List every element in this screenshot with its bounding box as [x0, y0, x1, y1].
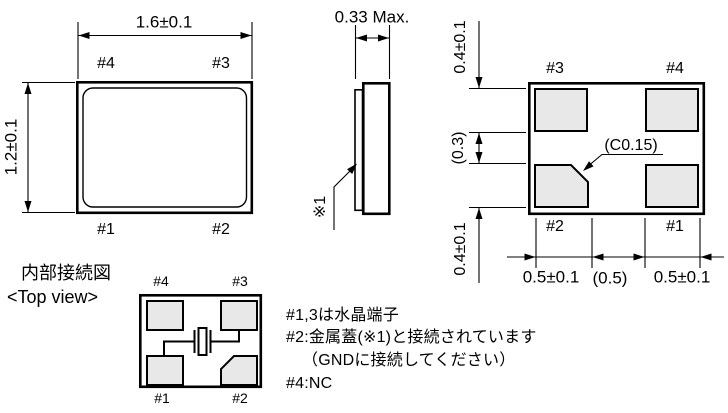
arrowhead	[356, 35, 367, 42]
pad-gap-vertical-dim-label: (0.3)	[451, 132, 467, 165]
internal-pad-1	[147, 356, 183, 385]
arrowhead	[476, 77, 483, 88]
internal-pin2-label: #2	[232, 391, 248, 405]
pad-3	[535, 89, 587, 131]
internal-pad-3	[221, 301, 257, 330]
arrowhead	[525, 254, 536, 261]
arrowhead	[634, 254, 645, 261]
top-view-height-dimension	[22, 83, 75, 213]
pad-height-top-dim-label: 0.4±0.1	[453, 20, 469, 73]
note-connect-gnd: （GNDに接続してください）	[302, 353, 515, 369]
note-pin2-metal-lid: #2:金属蓋(※1)と接続されています	[286, 330, 537, 346]
dimension-drawing-page: 1.6±0.1 1.2±0.1 #4 #3 #1 #2 0.33 Max. ※1…	[0, 0, 728, 413]
internal-pad-4	[147, 301, 183, 330]
land-pattern-pin2-label: #2	[546, 219, 564, 235]
note-crystal-terminals: #1,3は水晶端子	[286, 308, 399, 324]
side-view-thickness-label: 0.33 Max.	[335, 9, 410, 26]
arrowhead	[701, 254, 712, 261]
arrowhead	[25, 201, 32, 212]
lid-reference-label: ※1	[313, 196, 329, 218]
note-pin4-nc: #4:NC	[286, 376, 332, 392]
pad-4	[646, 89, 698, 131]
arrowhead	[378, 35, 389, 42]
land-pattern-pin3-label: #3	[546, 61, 564, 77]
land-pattern-horizontal-dimensions	[507, 218, 724, 268]
land-pattern-pin1-label: #1	[666, 219, 684, 235]
chamfer-dim-label: (C0.15)	[604, 138, 657, 154]
arrowhead	[476, 152, 483, 163]
internal-pin3-label: #3	[232, 274, 248, 288]
internal-diagram-title: 内部接続図	[21, 264, 111, 282]
top-view-package-outline	[77, 82, 252, 213]
side-view-metal-lid	[355, 90, 363, 211]
top-view-drawing	[22, 22, 252, 213]
arrowhead	[476, 208, 483, 219]
pad-width-left-dim-label: 0.5±0.1	[523, 269, 580, 286]
internal-diagram-subtitle: <Top view>	[7, 288, 98, 306]
lid-leader-line	[334, 171, 350, 230]
internal-pin4-label: #4	[153, 274, 169, 288]
arrowhead	[593, 254, 604, 261]
top-view-pin2-label: #2	[212, 222, 230, 238]
side-view-drawing	[334, 25, 390, 230]
top-view-width-dim-label: 1.6±0.1	[136, 14, 193, 31]
land-pattern-pin4-label: #4	[666, 61, 684, 77]
pad-height-bottom-dim-label: 0.4±0.1	[453, 222, 469, 275]
side-view-thickness-dimension	[356, 25, 390, 79]
arrowhead	[25, 83, 32, 94]
arrowhead	[79, 32, 90, 39]
top-view-pin4-label: #4	[97, 56, 115, 72]
top-view-height-dim-label: 1.2±0.1	[3, 119, 20, 176]
arrowhead	[241, 32, 252, 39]
pad-gap-horizontal-dim-label: (0.5)	[593, 270, 628, 287]
top-view-pin3-label: #3	[212, 56, 230, 72]
pad-1	[646, 165, 698, 207]
top-view-pin1-label: #1	[97, 222, 115, 238]
side-view-body	[363, 83, 389, 214]
arrowhead	[476, 133, 483, 144]
pad-width-right-dim-label: 0.5±0.1	[654, 269, 711, 286]
internal-pin1-label: #1	[154, 391, 170, 405]
land-pattern-drawing	[469, 21, 724, 283]
internal-connection-drawing	[140, 295, 260, 387]
